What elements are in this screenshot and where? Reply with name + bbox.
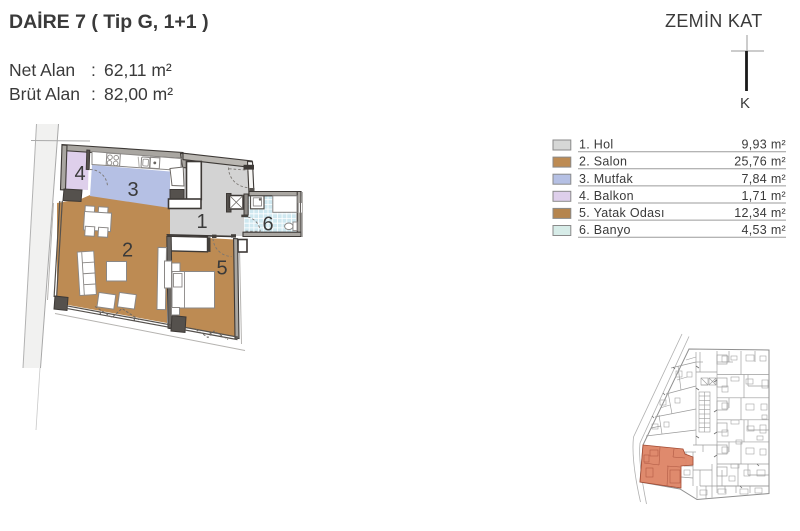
svg-text:7,84 m²: 7,84 m²	[742, 172, 786, 186]
svg-text:82,00 m²: 82,00 m²	[104, 84, 173, 104]
svg-text:2: 2	[122, 240, 133, 262]
svg-text:3. Mutfak: 3. Mutfak	[579, 172, 634, 186]
svg-text:3: 3	[128, 179, 139, 201]
svg-text:5: 5	[217, 258, 228, 280]
svg-text:1,71 m²: 1,71 m²	[742, 189, 786, 203]
svg-text:Net Alan: Net Alan	[9, 60, 75, 80]
svg-text:4,53 m²: 4,53 m²	[742, 223, 786, 237]
svg-text:4: 4	[75, 163, 86, 185]
svg-text:ZEMİN KAT: ZEMİN KAT	[665, 11, 763, 31]
svg-text:2. Salon: 2. Salon	[579, 155, 627, 169]
svg-text:1. Hol: 1. Hol	[579, 138, 613, 152]
svg-text::: :	[91, 60, 96, 80]
svg-text:DAİRE 7 ( Tip G, 1+1 ): DAİRE 7 ( Tip G, 1+1 )	[9, 10, 209, 33]
svg-text:K: K	[740, 95, 750, 112]
svg-text::: :	[91, 84, 96, 104]
svg-text:4. Balkon: 4. Balkon	[579, 189, 634, 203]
svg-text:9,93 m²: 9,93 m²	[742, 138, 786, 152]
svg-text:25,76 m²: 25,76 m²	[734, 155, 786, 169]
svg-text:6: 6	[263, 214, 274, 236]
svg-text:12,34 m²: 12,34 m²	[734, 206, 786, 220]
svg-text:Brüt Alan: Brüt Alan	[9, 84, 80, 104]
svg-text:62,11 m²: 62,11 m²	[104, 60, 172, 80]
svg-text:1: 1	[197, 211, 208, 233]
svg-text:6. Banyo: 6. Banyo	[579, 223, 631, 237]
svg-text:5. Yatak Odası: 5. Yatak Odası	[579, 206, 665, 220]
